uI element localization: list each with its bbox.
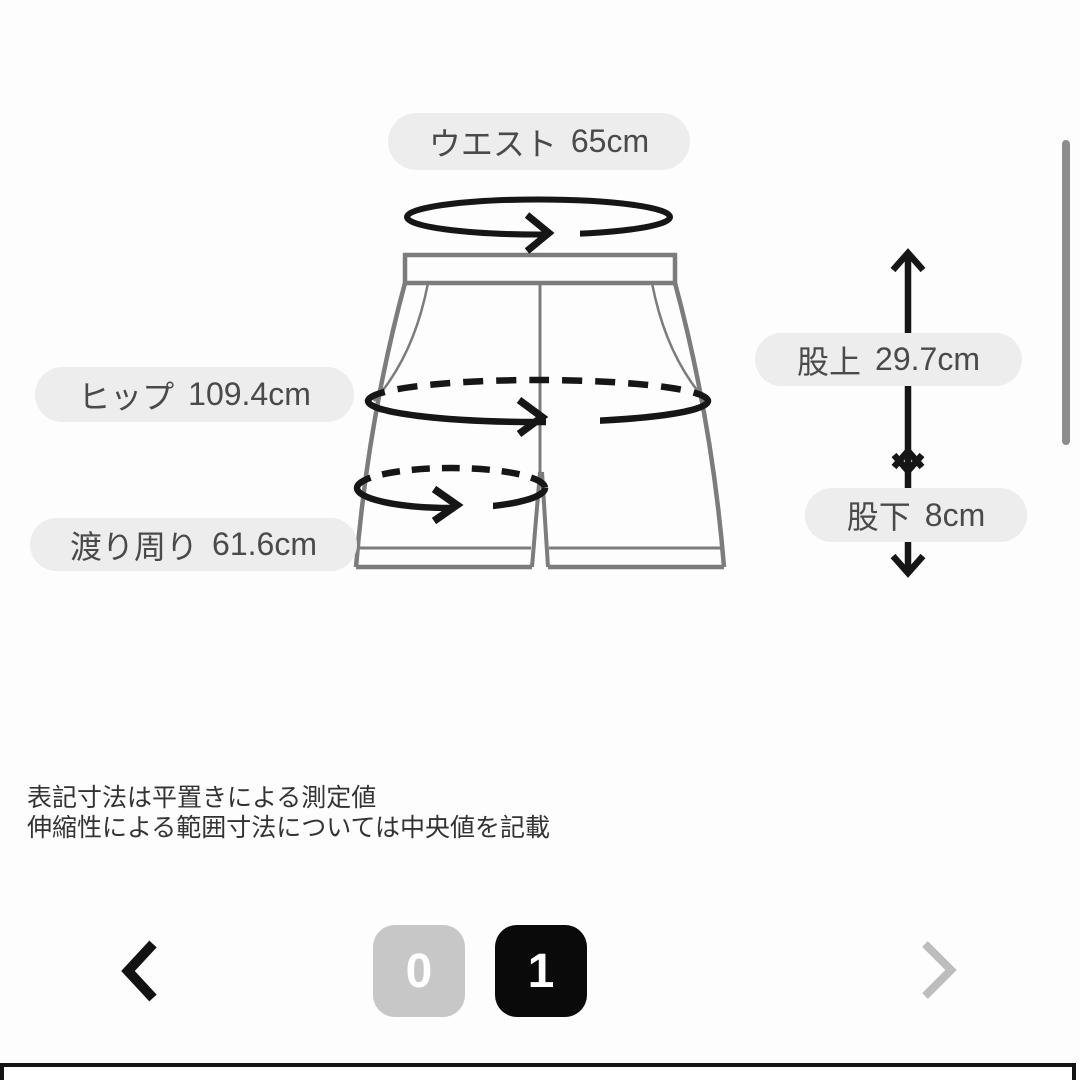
- hip-value: 109.4cm: [188, 376, 311, 413]
- note-line-2: 伸縮性による範囲寸法については中央値を記載: [27, 813, 550, 843]
- measurement-notes: 表記寸法は平置きによる測定値 伸縮性による範囲寸法については中央値を記載: [27, 783, 550, 843]
- thigh-label: 渡り周り: [70, 522, 198, 568]
- rise-value: 29.7cm: [875, 341, 980, 378]
- inseam-value: 8cm: [925, 497, 985, 534]
- inseam-measurement-pill: 股下 8cm: [805, 488, 1027, 542]
- page-button-1[interactable]: 1: [495, 925, 587, 1017]
- rise-measurement-pill: 股上 29.7cm: [755, 333, 1022, 386]
- inseam-extent-arrow: [893, 540, 923, 573]
- size-chart-screen: ウエスト 65cm ヒップ 109.4cm 渡り周り 61.6cm 股上 29.…: [0, 0, 1080, 1080]
- next-image-button[interactable]: [913, 936, 961, 1006]
- chevron-left-icon: [118, 936, 166, 1006]
- thigh-girth-arrow: [357, 468, 545, 521]
- hip-girth-arrow: [368, 380, 708, 434]
- hip-label: ヒップ: [78, 372, 174, 418]
- waist-measurement-pill: ウエスト 65cm: [388, 113, 690, 170]
- inseam-label: 股下: [847, 492, 911, 538]
- thigh-value: 61.6cm: [212, 526, 317, 563]
- note-line-1: 表記寸法は平置きによる測定値: [27, 783, 550, 813]
- chevron-right-icon: [913, 936, 961, 1006]
- prev-image-button[interactable]: [118, 936, 166, 1006]
- waist-girth-arrow: [407, 200, 670, 252]
- rise-label: 股上: [797, 337, 861, 383]
- waist-label: ウエスト: [429, 119, 557, 165]
- hip-measurement-pill: ヒップ 109.4cm: [35, 367, 354, 422]
- page-button-0[interactable]: 0: [373, 925, 465, 1017]
- waist-value: 65cm: [571, 123, 649, 160]
- scrollbar-thumb[interactable]: [1062, 140, 1070, 445]
- thigh-measurement-pill: 渡り周り 61.6cm: [30, 518, 357, 571]
- next-section-frame-edge: [0, 1063, 1076, 1080]
